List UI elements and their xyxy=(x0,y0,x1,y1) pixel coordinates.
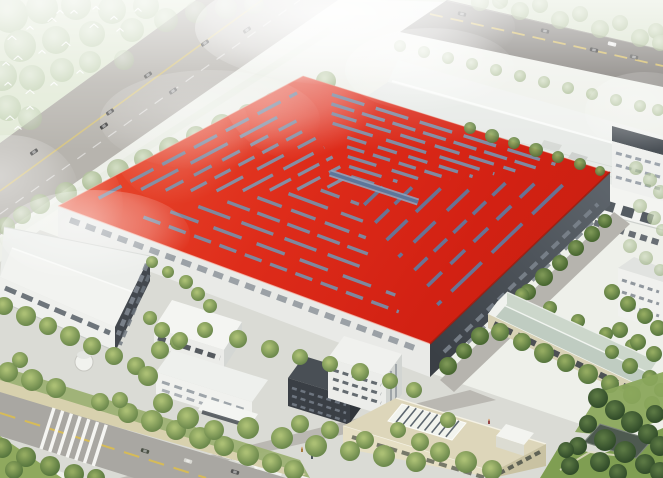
tree xyxy=(584,226,600,242)
tree xyxy=(614,441,636,463)
tree xyxy=(647,211,661,225)
tree xyxy=(151,341,169,359)
tree xyxy=(191,287,205,301)
person xyxy=(488,419,490,424)
tree xyxy=(321,421,339,439)
tree xyxy=(203,299,217,313)
tree xyxy=(105,347,123,365)
tree xyxy=(373,445,395,467)
tree xyxy=(16,306,36,326)
tree xyxy=(605,345,619,359)
tree xyxy=(620,296,636,312)
tree xyxy=(154,322,170,338)
tree xyxy=(623,239,637,253)
tree xyxy=(261,340,279,358)
tree xyxy=(138,366,158,386)
tree xyxy=(229,330,247,348)
tree xyxy=(629,161,643,175)
tree xyxy=(21,369,43,391)
tree xyxy=(430,442,450,462)
tree xyxy=(39,317,57,335)
tree xyxy=(40,456,60,476)
tree xyxy=(491,323,509,341)
tree xyxy=(271,427,293,449)
tree xyxy=(595,166,605,176)
tree xyxy=(237,444,259,466)
tree xyxy=(177,407,199,429)
tree xyxy=(552,151,564,163)
tree xyxy=(579,415,597,433)
tree xyxy=(598,214,612,228)
tree xyxy=(305,435,327,457)
tree xyxy=(237,417,259,439)
tree xyxy=(172,332,188,348)
tree xyxy=(179,275,193,289)
tree xyxy=(141,410,163,432)
tree xyxy=(351,363,369,381)
tree xyxy=(322,356,338,372)
atmospheric-haze xyxy=(0,0,663,150)
tree xyxy=(356,431,374,449)
tree xyxy=(390,422,406,438)
tree xyxy=(513,333,531,351)
tree xyxy=(535,268,553,286)
tree xyxy=(112,392,128,408)
tree xyxy=(637,308,653,324)
tree xyxy=(440,412,456,428)
tree xyxy=(534,343,554,363)
tree xyxy=(590,452,610,472)
tree xyxy=(91,393,109,411)
tree xyxy=(557,354,575,372)
tree xyxy=(382,373,398,389)
tree xyxy=(605,400,625,420)
tree xyxy=(561,457,579,475)
tree xyxy=(143,311,157,325)
tree xyxy=(604,284,620,300)
tree xyxy=(262,453,282,473)
tree xyxy=(578,364,598,384)
tree xyxy=(568,240,584,256)
scene-canvas xyxy=(0,0,663,478)
tree xyxy=(292,349,308,365)
tree xyxy=(411,433,429,451)
tree xyxy=(83,337,101,355)
aerial-factory-rendering xyxy=(0,0,663,478)
tree xyxy=(558,442,574,458)
tree xyxy=(456,343,472,359)
tree xyxy=(643,173,657,187)
tree xyxy=(594,429,616,451)
tree xyxy=(588,388,608,408)
tree xyxy=(406,382,422,398)
tree xyxy=(153,393,173,413)
tree xyxy=(406,452,426,472)
tree xyxy=(639,251,653,265)
tree xyxy=(646,346,662,362)
tree xyxy=(612,322,628,338)
tree xyxy=(455,451,477,473)
tree xyxy=(197,322,213,338)
tree xyxy=(552,255,568,271)
tree xyxy=(291,415,309,433)
tree xyxy=(633,199,647,213)
person xyxy=(301,447,303,452)
tree xyxy=(46,378,66,398)
tree xyxy=(60,326,80,346)
tree xyxy=(12,352,28,368)
tree xyxy=(204,420,224,440)
tree xyxy=(439,357,457,375)
tree xyxy=(574,158,586,170)
tree xyxy=(162,266,174,278)
tree xyxy=(622,358,638,374)
tree xyxy=(471,327,489,345)
tree xyxy=(630,334,646,350)
